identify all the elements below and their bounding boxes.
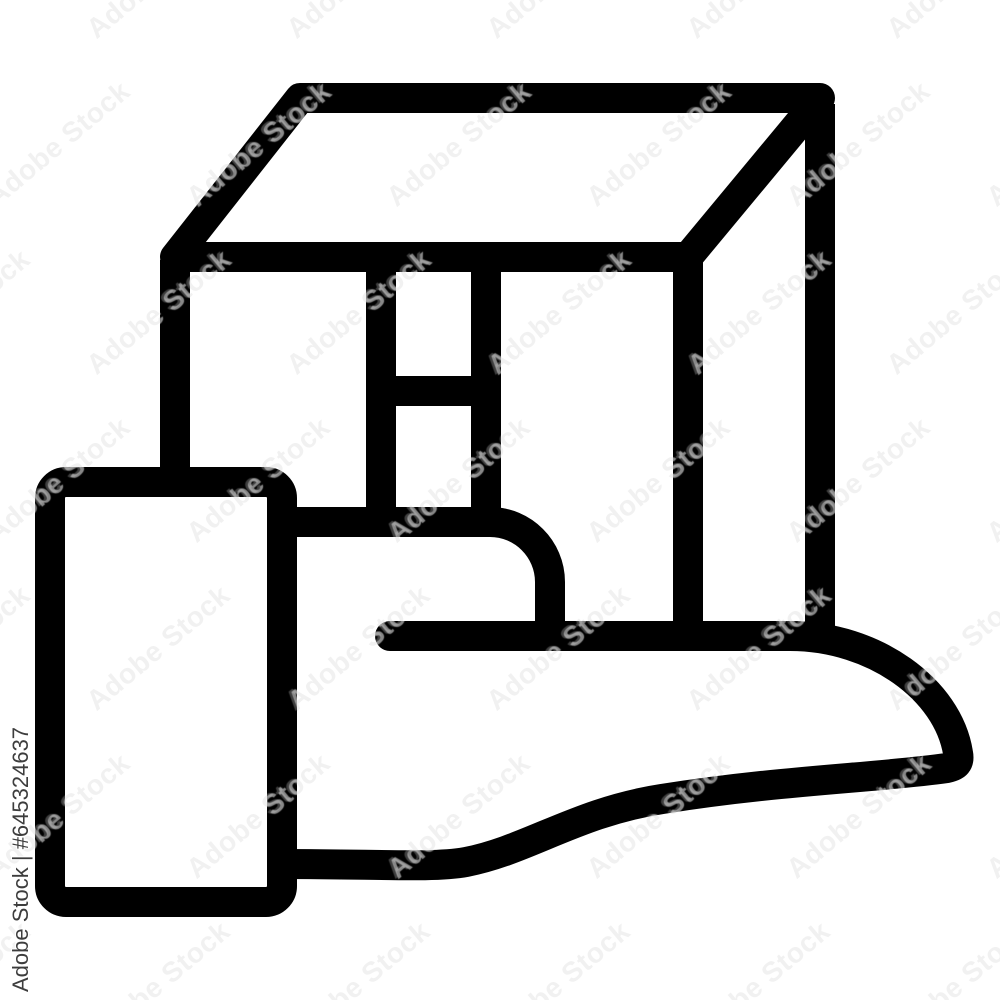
package-on-hand-icon (0, 0, 1000, 1000)
watermark-attribution-label: Adobe Stock | #645324637 (8, 727, 34, 992)
stock-image-preview: Adobe StockAdobe StockAdobe StockAdobe S… (0, 0, 1000, 1000)
hand-outline (283, 636, 959, 865)
small-box (50, 482, 282, 902)
box-top-face (175, 98, 820, 257)
